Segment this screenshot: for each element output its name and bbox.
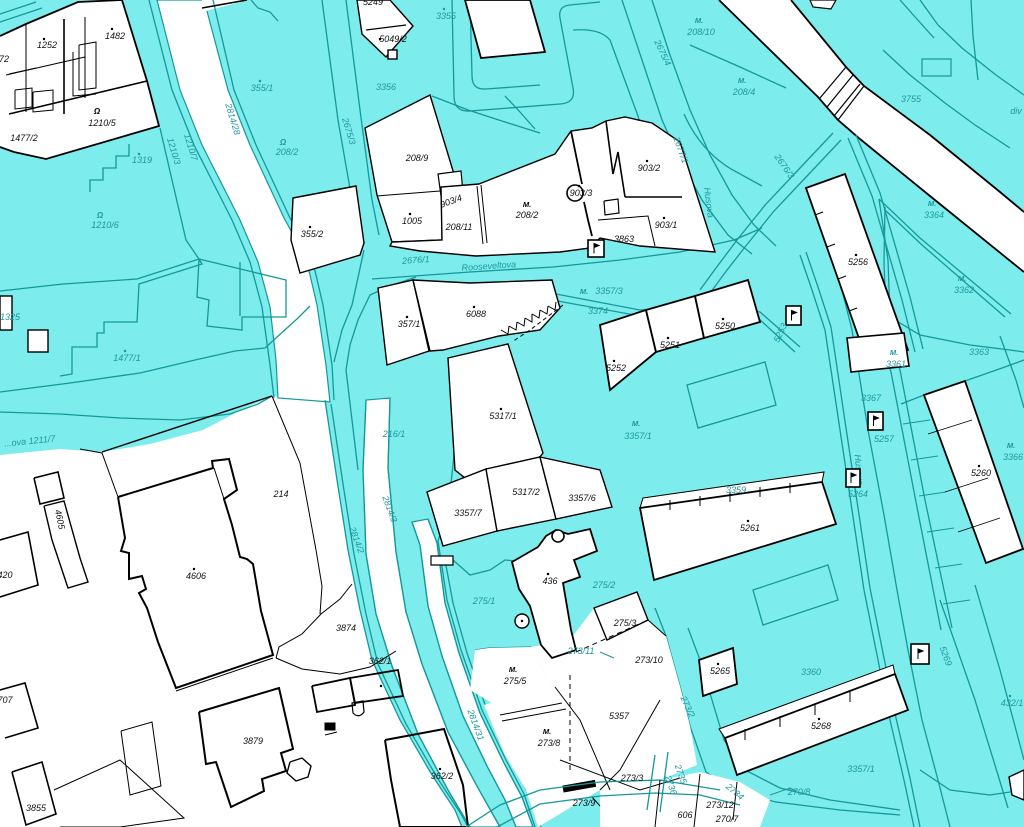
svg-text:3879: 3879	[243, 736, 263, 746]
svg-text:5317/1: 5317/1	[489, 411, 517, 421]
svg-text:707: 707	[0, 695, 13, 705]
svg-text:208/2: 208/2	[515, 210, 539, 220]
svg-text:208/9: 208/9	[405, 153, 429, 163]
svg-text:1482: 1482	[105, 31, 125, 41]
svg-text:436: 436	[542, 576, 557, 586]
svg-text:M.: M.	[890, 348, 898, 357]
svg-text:M.: M.	[523, 200, 531, 209]
svg-text:M.: M.	[509, 665, 517, 674]
svg-text:273/3: 273/3	[620, 773, 644, 783]
svg-text:div: div	[1010, 106, 1022, 116]
svg-text:3357/3: 3357/3	[595, 286, 623, 296]
svg-text:3361: 3361	[886, 359, 906, 369]
svg-text:Ω: Ω	[279, 138, 287, 147]
svg-text:5357: 5357	[609, 711, 630, 721]
svg-text:208/11: 208/11	[445, 222, 473, 232]
svg-text:6088: 6088	[466, 309, 486, 319]
svg-text:3366: 3366	[1003, 452, 1023, 462]
svg-text:3755: 3755	[901, 94, 922, 104]
svg-text:M.: M.	[928, 199, 936, 208]
svg-text:5249: 5249	[363, 0, 383, 7]
svg-text:3357/1: 3357/1	[624, 431, 652, 441]
svg-text:3874: 3874	[336, 623, 356, 633]
svg-text:3359: 3359	[726, 485, 746, 495]
svg-text:4606: 4606	[186, 571, 206, 581]
svg-text:3362: 3362	[954, 285, 974, 295]
svg-text:3855: 3855	[26, 803, 47, 813]
svg-text:M.: M.	[738, 76, 746, 85]
svg-text:5317/2: 5317/2	[512, 487, 540, 497]
svg-text:5257: 5257	[874, 434, 895, 444]
svg-text:3360: 3360	[801, 667, 821, 677]
svg-text:357/1: 357/1	[398, 319, 421, 329]
svg-text:362/2: 362/2	[431, 771, 454, 781]
svg-text:903/2: 903/2	[638, 163, 661, 173]
svg-text:903/3: 903/3	[570, 188, 593, 198]
svg-text:270/7: 270/7	[715, 814, 740, 824]
svg-text:270/8: 270/8	[787, 787, 811, 797]
svg-text:275/1: 275/1	[472, 596, 496, 606]
svg-text:5265: 5265	[710, 666, 731, 676]
svg-text:3357/6: 3357/6	[568, 493, 596, 503]
svg-text:5261: 5261	[740, 523, 760, 533]
svg-text:Ω: Ω	[93, 107, 101, 116]
svg-text:1477/2: 1477/2	[10, 133, 38, 143]
svg-text:208/10: 208/10	[686, 27, 715, 37]
svg-text:3355: 3355	[436, 11, 457, 21]
svg-text:208/4: 208/4	[732, 87, 756, 97]
svg-text:5251: 5251	[660, 340, 680, 350]
svg-text:5264: 5264	[848, 489, 868, 499]
svg-text:5252: 5252	[606, 363, 626, 373]
svg-text:3357/7: 3357/7	[454, 508, 483, 518]
svg-text:3863: 3863	[614, 234, 634, 244]
svg-text:275/3: 275/3	[613, 618, 637, 628]
svg-text:214: 214	[272, 489, 288, 499]
svg-text:1325: 1325	[0, 312, 21, 322]
svg-text:3363: 3363	[969, 347, 989, 357]
svg-text:355/2: 355/2	[301, 229, 324, 239]
svg-text:903/1: 903/1	[655, 220, 678, 230]
svg-text:M.: M.	[543, 727, 551, 736]
svg-text:3357/1: 3357/1	[847, 764, 875, 774]
svg-text:273/10: 273/10	[634, 655, 663, 665]
svg-text:5256: 5256	[848, 257, 868, 267]
svg-text:5268: 5268	[811, 721, 831, 731]
svg-text:208/2: 208/2	[275, 147, 299, 157]
svg-text:1252: 1252	[37, 40, 57, 50]
svg-text:273/12: 273/12	[705, 800, 734, 810]
svg-text:3367: 3367	[861, 393, 882, 403]
svg-text:Ω: Ω	[96, 211, 104, 220]
svg-text:273/8: 273/8	[537, 738, 561, 748]
svg-text:216/1: 216/1	[382, 429, 406, 439]
svg-text:606: 606	[677, 810, 692, 820]
svg-text:355/1: 355/1	[251, 83, 274, 93]
svg-text:420: 420	[0, 570, 13, 580]
svg-text:432/1: 432/1	[1001, 698, 1024, 708]
svg-text:5250: 5250	[715, 321, 735, 331]
svg-text:275/2: 275/2	[592, 580, 616, 590]
svg-text:362/1: 362/1	[369, 656, 392, 666]
svg-text:M.: M.	[632, 419, 640, 428]
svg-text:2676/1: 2676/1	[401, 254, 430, 266]
svg-text:3364: 3364	[924, 210, 944, 220]
svg-text:3356: 3356	[376, 82, 396, 92]
svg-text:M.: M.	[695, 16, 703, 25]
svg-text:1210/6: 1210/6	[91, 220, 119, 230]
svg-text:5260: 5260	[971, 468, 991, 478]
svg-text:M.: M.	[1007, 441, 1015, 450]
svg-text:72: 72	[0, 54, 9, 64]
svg-text:1005: 1005	[402, 216, 423, 226]
svg-text:1319: 1319	[132, 155, 152, 165]
svg-text:3374: 3374	[588, 306, 608, 316]
svg-text:273/9: 273/9	[572, 798, 596, 808]
svg-text:1477/1: 1477/1	[113, 353, 141, 363]
svg-text:1210/5: 1210/5	[88, 118, 117, 128]
svg-text:5049/2: 5049/2	[379, 34, 407, 44]
svg-text:M.: M.	[958, 274, 966, 283]
svg-text:M.: M.	[580, 287, 588, 296]
svg-text:275/5: 275/5	[503, 676, 528, 686]
svg-text:273/11: 273/11	[567, 646, 595, 656]
